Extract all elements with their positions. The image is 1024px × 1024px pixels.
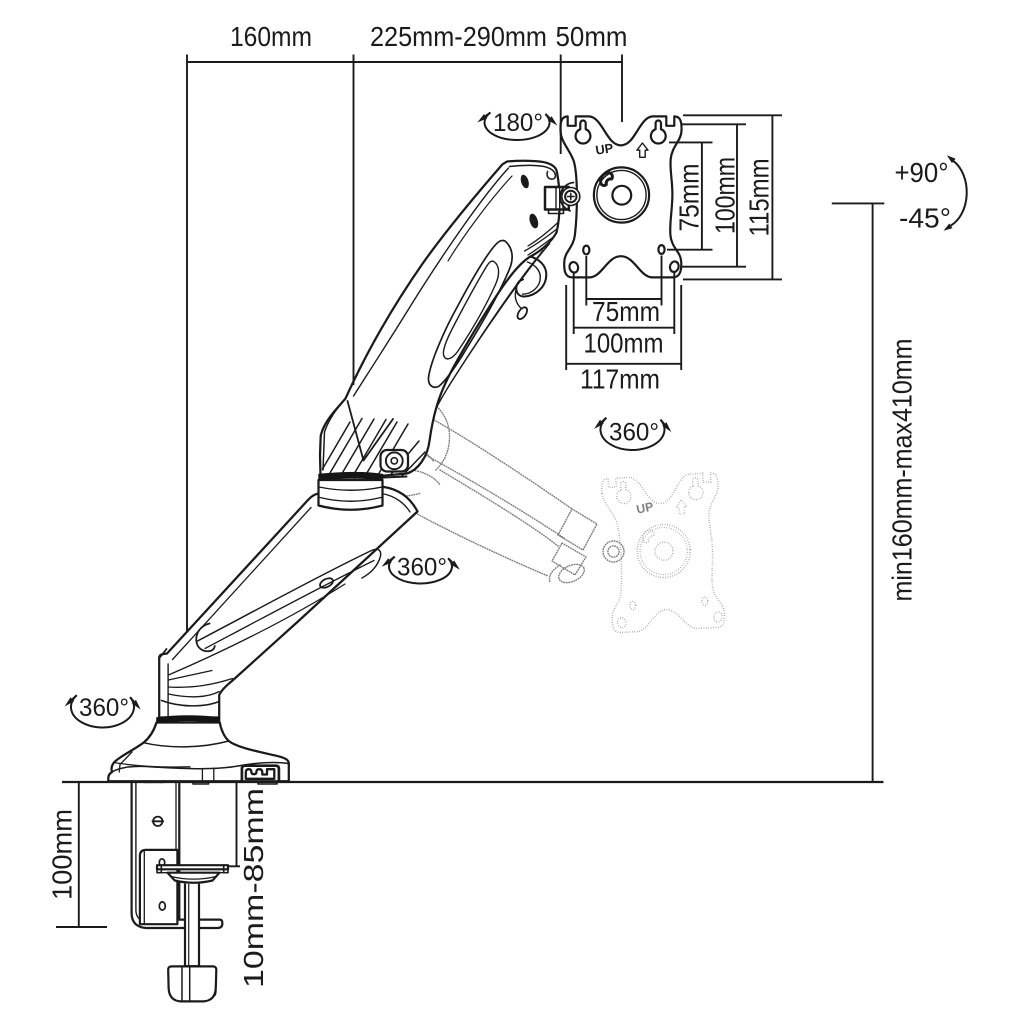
- svg-text:115mm: 115mm: [744, 159, 775, 237]
- svg-text:75mm: 75mm: [674, 164, 705, 232]
- svg-text:225mm-290mm: 225mm-290mm: [370, 21, 547, 52]
- svg-text:180°: 180°: [493, 109, 543, 137]
- svg-text:360°: 360°: [397, 554, 447, 582]
- svg-text:10mm-85mm: 10mm-85mm: [238, 788, 269, 988]
- svg-text:360°: 360°: [609, 419, 659, 447]
- svg-text:75mm: 75mm: [592, 296, 660, 327]
- svg-text:+90°: +90°: [895, 157, 949, 188]
- svg-text:UP: UP: [594, 140, 614, 158]
- svg-text:360°: 360°: [79, 694, 129, 722]
- svg-text:100mm: 100mm: [710, 157, 741, 234]
- svg-text:50mm: 50mm: [556, 21, 628, 52]
- svg-text:100mm: 100mm: [584, 328, 664, 359]
- svg-text:min160mm-max410mm: min160mm-max410mm: [887, 339, 918, 602]
- svg-text:-45°: -45°: [899, 203, 951, 234]
- svg-text:100mm: 100mm: [46, 809, 77, 900]
- svg-text:117mm: 117mm: [580, 364, 660, 395]
- svg-text:160mm: 160mm: [230, 21, 312, 52]
